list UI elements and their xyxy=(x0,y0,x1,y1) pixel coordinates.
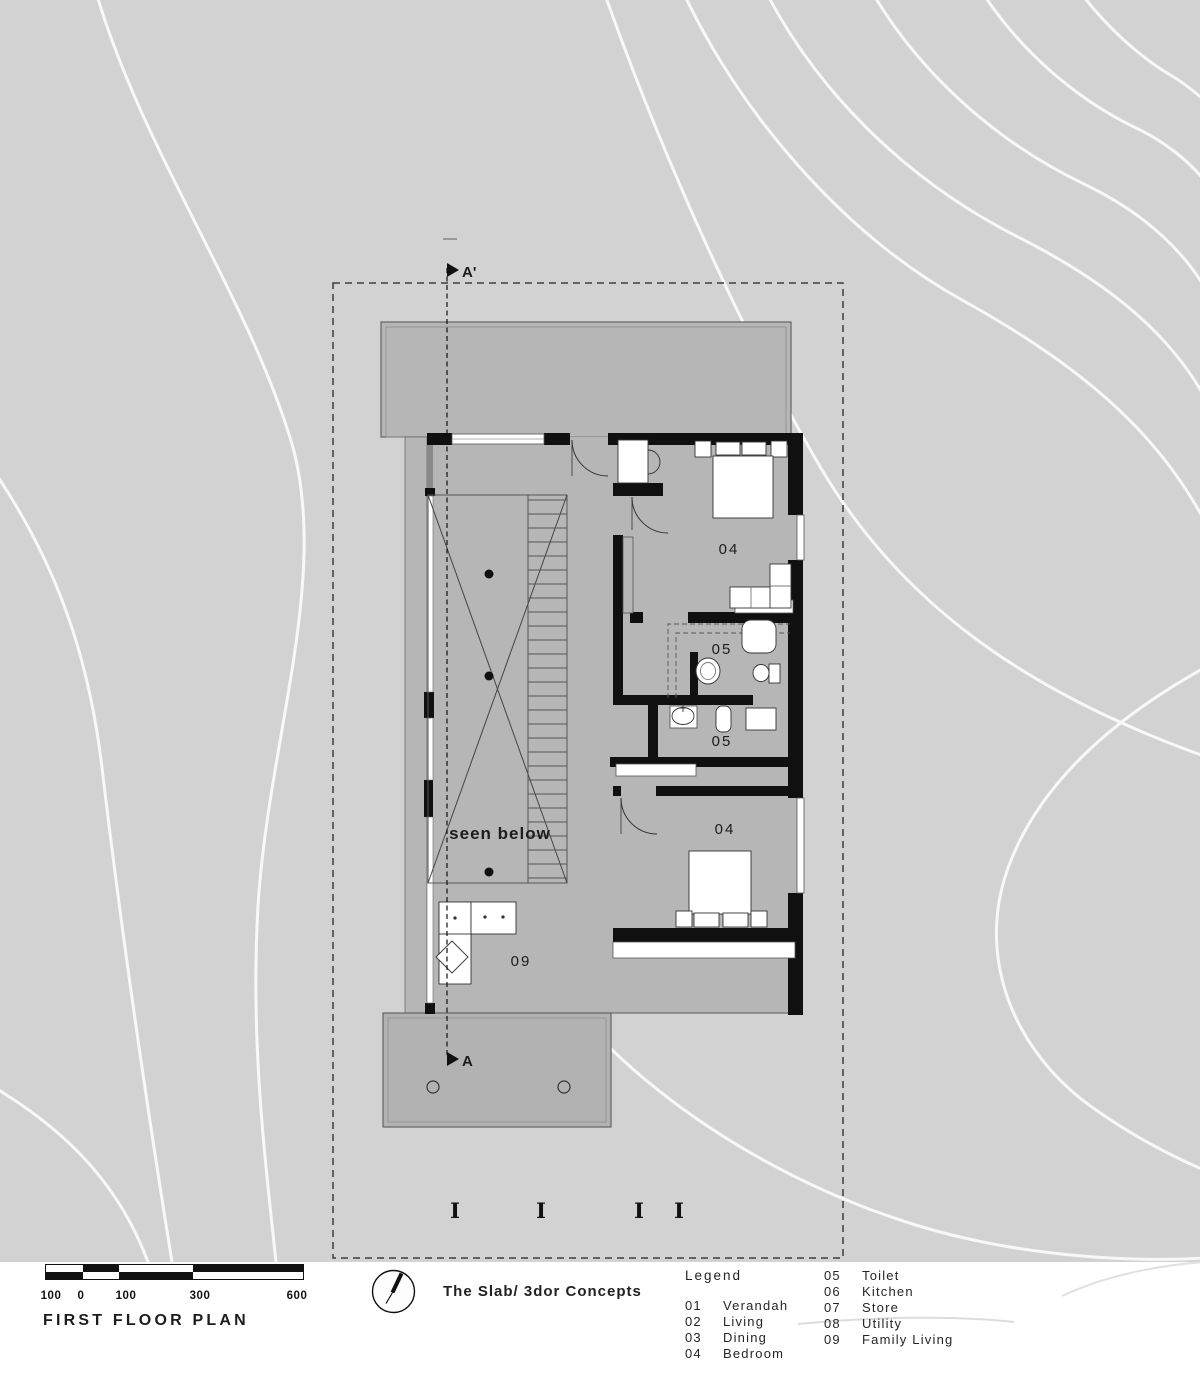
roof-slab xyxy=(381,322,791,437)
legend-item: 02Living xyxy=(685,1314,788,1330)
scale-tick-label: 100 xyxy=(116,1290,137,1302)
column-dot xyxy=(485,570,494,579)
urinal xyxy=(716,706,731,732)
legend-item: 03Dining xyxy=(685,1330,788,1346)
room-label-bedroom-bottom: 04 xyxy=(715,821,736,838)
legend-name: Utility xyxy=(862,1316,902,1331)
bed xyxy=(689,851,751,914)
legend-heading: Legend xyxy=(685,1268,742,1283)
column-marker: I xyxy=(450,1198,460,1223)
floor-plan-sheet: A' A 04 05 05 04 09 seen below I I I I 1… xyxy=(0,0,1200,1382)
column-dot xyxy=(485,672,494,681)
legend-code: 01 xyxy=(685,1298,723,1314)
section-label-bottom: A xyxy=(462,1053,473,1070)
pillow xyxy=(716,442,740,455)
north-arrow-icon xyxy=(371,1269,417,1315)
legend-code: 04 xyxy=(685,1346,723,1362)
legend-name: Store xyxy=(862,1300,899,1315)
column-circle xyxy=(558,1081,570,1093)
west-ledge xyxy=(405,437,427,1013)
room-label-toilet-top: 05 xyxy=(712,641,733,658)
pillow xyxy=(723,913,748,927)
bed xyxy=(713,456,773,518)
column-circle xyxy=(427,1081,439,1093)
legend-code: 02 xyxy=(685,1314,723,1330)
legend-item: 08Utility xyxy=(824,1316,953,1332)
legend-code: 09 xyxy=(824,1332,862,1348)
sofa-seat xyxy=(471,902,516,934)
scale-tick-label: 300 xyxy=(190,1290,211,1302)
legend-code: 06 xyxy=(824,1284,862,1300)
wardrobe xyxy=(623,537,633,613)
legend-item: 05Toilet xyxy=(824,1268,953,1284)
closet xyxy=(618,440,648,483)
room-label-family-living: 09 xyxy=(511,953,532,970)
legend-code: 03 xyxy=(685,1330,723,1346)
pillow xyxy=(742,442,766,455)
legend-item: 09Family Living xyxy=(824,1332,953,1348)
shower xyxy=(742,620,776,653)
wc-tank xyxy=(769,664,780,683)
project-title: The Slab/ 3dor Concepts xyxy=(443,1283,642,1300)
terrace-slab xyxy=(383,1013,611,1127)
wall-gray xyxy=(427,445,433,488)
toilet-bottom-fixtures xyxy=(670,704,776,732)
side-table xyxy=(676,911,692,927)
legend-name: Living xyxy=(723,1314,764,1329)
scale-bar xyxy=(45,1264,304,1280)
legend-item: 06Kitchen xyxy=(824,1284,953,1300)
side-table xyxy=(771,441,787,457)
room-label-bedroom-top: 04 xyxy=(719,541,740,558)
wash-basin xyxy=(696,658,720,684)
plan-drawing: A' A 04 05 05 04 09 seen below I I I I xyxy=(0,0,1200,1382)
legend-code: 08 xyxy=(824,1316,862,1332)
wc-bowl xyxy=(753,665,769,682)
legend-code: 07 xyxy=(824,1300,862,1316)
room-label-toilet-bottom: 05 xyxy=(712,733,733,750)
legend-name: Kitchen xyxy=(862,1284,914,1299)
column-dot xyxy=(485,868,494,877)
legend-item: 04Bedroom xyxy=(685,1346,788,1362)
pillow xyxy=(694,913,719,927)
scale-tick-label: 600 xyxy=(287,1290,308,1302)
legend-item: 07Store xyxy=(824,1300,953,1316)
side-table xyxy=(695,441,711,457)
legend-item: 01Verandah xyxy=(685,1298,788,1314)
legend-column-1: 01Verandah 02Living 03Dining 04Bedroom xyxy=(685,1298,788,1362)
drawing-title: FIRST FLOOR PLAN xyxy=(43,1312,249,1330)
legend-code: 05 xyxy=(824,1268,862,1284)
column-marker: I xyxy=(536,1198,546,1223)
scale-tick-label: 0 xyxy=(78,1290,85,1302)
legend-name: Bedroom xyxy=(723,1346,784,1361)
column-marker: I xyxy=(634,1198,644,1223)
legend-name: Toilet xyxy=(862,1268,900,1283)
side-table xyxy=(751,911,767,927)
sofa-seat xyxy=(730,587,773,608)
void-note: seen below xyxy=(449,824,551,843)
counter xyxy=(746,708,776,730)
legend-column-2: 05Toilet 06Kitchen 07Store 08Utility 09F… xyxy=(824,1268,953,1348)
legend-name: Verandah xyxy=(723,1298,788,1313)
legend-name: Dining xyxy=(723,1330,767,1345)
column-marker: I xyxy=(674,1198,684,1223)
section-label-top: A' xyxy=(462,264,476,281)
scale-tick-label: 100 xyxy=(41,1290,62,1302)
legend-name: Family Living xyxy=(862,1332,953,1347)
